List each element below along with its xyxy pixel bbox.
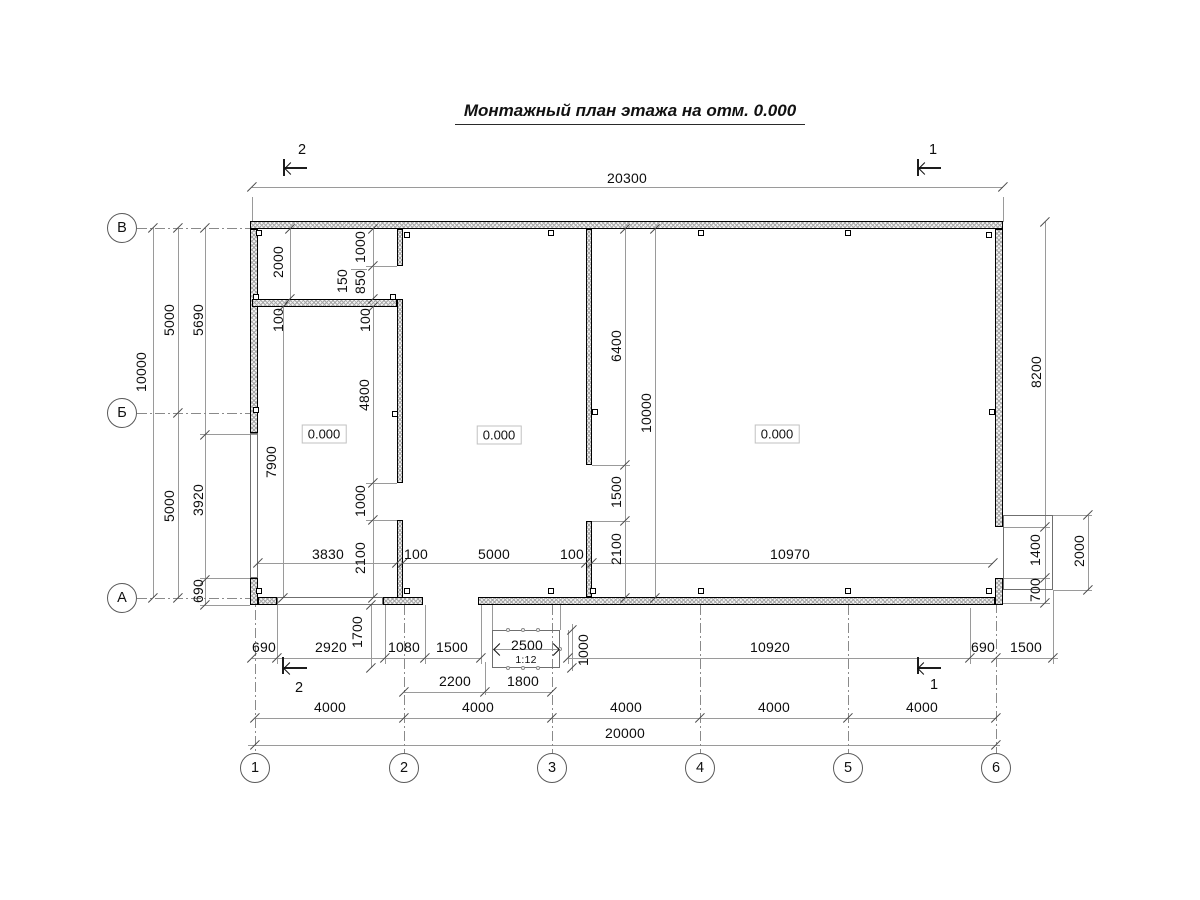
- dimension-label: 2100: [352, 542, 368, 574]
- dimension-label: 1080: [388, 639, 420, 655]
- embedded-plate-mark: [253, 294, 259, 300]
- dimension-line: [1088, 515, 1089, 590]
- dimension-line: [252, 197, 253, 222]
- dimension-label: 1000: [352, 485, 368, 517]
- dimension-label: 4000: [906, 699, 938, 715]
- room-level-label: 0.000: [477, 426, 522, 445]
- axis-bubble: А: [107, 583, 137, 613]
- window-opening: [250, 433, 258, 578]
- dimension-label: 5000: [161, 304, 177, 336]
- dimension-label: 690: [252, 639, 276, 655]
- dimension-label: 10920: [750, 639, 790, 655]
- dimension-label: 6400: [608, 330, 624, 362]
- dimension-label: 850: [352, 270, 368, 294]
- dimension-line: [572, 624, 573, 671]
- dimension-label: 150: [334, 269, 350, 293]
- dimension-label: 2920: [315, 639, 347, 655]
- ramp-anchor-dot: [521, 628, 525, 632]
- dimension-label: 3920: [190, 484, 206, 516]
- dimension-line: [205, 228, 206, 605]
- room-level-label: 0.000: [302, 425, 347, 444]
- axis-line: [137, 413, 258, 414]
- dimension-label: 1800: [507, 673, 539, 689]
- dimension-label: 2500: [511, 637, 543, 653]
- dimension-line: [290, 229, 291, 299]
- dimension-label: 10000: [638, 393, 654, 433]
- dimension-line: [492, 605, 493, 630]
- dimension-label: 5690: [190, 304, 206, 336]
- dimension-label: 700: [1027, 578, 1043, 602]
- embedded-plate-mark: [256, 230, 262, 236]
- dimension-line: [252, 187, 1003, 188]
- dimension-line: [1003, 197, 1004, 222]
- embedded-plate-mark: [548, 588, 554, 594]
- axis-bubble: 3: [537, 753, 567, 783]
- dimension-label: 4000: [758, 699, 790, 715]
- drawing-title-text: Монтажный план этажа на отм. 0.000: [464, 101, 796, 120]
- embedded-plate-mark: [392, 411, 398, 417]
- dimension-line: [568, 658, 1058, 659]
- section-marker-label: 2: [298, 142, 306, 158]
- embedded-plate-mark: [989, 409, 995, 415]
- dimension-label: 1500: [436, 639, 468, 655]
- dimension-label: 8200: [1028, 356, 1044, 388]
- ramp-anchor-dot: [521, 666, 525, 670]
- section-marker-label: 2: [295, 680, 303, 696]
- dimension-label: 2000: [270, 246, 286, 278]
- embedded-plate-mark: [986, 232, 992, 238]
- embedded-plate-mark: [256, 588, 262, 594]
- axis-bubble: 5: [833, 753, 863, 783]
- wall-segment: [258, 597, 277, 605]
- axis-bubble: В: [107, 213, 137, 243]
- section-arrow-icon: [284, 162, 297, 175]
- dimension-label: 1000: [352, 231, 368, 263]
- dimension-label: 1500: [608, 476, 624, 508]
- dimension-line: [200, 605, 250, 606]
- embedded-plate-mark: [592, 409, 598, 415]
- dimension-label: 2000: [1071, 535, 1087, 567]
- dimension-label: 100: [270, 308, 286, 332]
- section-arrow-icon: [918, 162, 931, 175]
- dimension-line: [655, 229, 656, 598]
- dimension-label: 10000: [133, 352, 149, 392]
- dimension-label: 2200: [439, 673, 471, 689]
- dimension-label: 5000: [478, 546, 510, 562]
- dimension-label: 7900: [263, 446, 279, 478]
- floor-plan-canvas: Монтажный план этажа на отм. 0.000 20300…: [0, 0, 1200, 900]
- embedded-plate-mark: [404, 588, 410, 594]
- wall-segment: [478, 597, 995, 605]
- dimension-label: 100: [404, 546, 428, 562]
- dimension-label: 1400: [1027, 534, 1043, 566]
- dimension-label: 690: [971, 639, 995, 655]
- axis-line: [552, 605, 553, 753]
- wall-segment: [586, 229, 592, 465]
- axis-line: [255, 592, 256, 753]
- wall-segment: [397, 229, 403, 266]
- dimension-label: 100: [560, 546, 584, 562]
- axis-bubble: 1: [240, 753, 270, 783]
- dimension-line: [373, 229, 374, 598]
- embedded-plate-mark: [845, 230, 851, 236]
- drawing-title: Монтажный план этажа на отм. 0.000: [455, 101, 805, 125]
- dimension-label: 4000: [462, 699, 494, 715]
- axis-line: [404, 605, 405, 753]
- wall-segment: [383, 597, 423, 605]
- dimension-line: [568, 630, 569, 664]
- dimension-label: 4800: [356, 379, 372, 411]
- dimension-label: 1:12: [515, 654, 536, 666]
- dimension-label: 1500: [1010, 639, 1042, 655]
- dimension-line: [404, 692, 552, 693]
- room-level-label: 0.000: [755, 425, 800, 444]
- embedded-plate-mark: [986, 588, 992, 594]
- wall-segment: [995, 229, 1003, 527]
- wall-segment: [995, 578, 1003, 605]
- dimension-line: [560, 605, 561, 630]
- ramp-anchor-dot: [506, 628, 510, 632]
- axis-line: [137, 228, 250, 229]
- dimension-line: [248, 745, 1000, 746]
- axis-line: [996, 603, 997, 753]
- embedded-plate-mark: [390, 294, 396, 300]
- axis-line: [848, 605, 849, 753]
- dimension-label: 100: [357, 308, 373, 332]
- dimension-label: 4000: [610, 699, 642, 715]
- axis-line: [700, 605, 701, 753]
- dimension-label: 20000: [605, 725, 645, 741]
- embedded-plate-mark: [548, 230, 554, 236]
- dimension-line: [252, 658, 481, 659]
- dimension-line: [283, 307, 284, 598]
- wall-segment: [250, 229, 258, 433]
- section-marker-line: [282, 657, 284, 674]
- section-arrow-icon: [917, 662, 930, 675]
- embedded-plate-mark: [404, 232, 410, 238]
- ramp-anchor-dot: [536, 628, 540, 632]
- axis-bubble: 6: [981, 753, 1011, 783]
- axis-bubble: 4: [685, 753, 715, 783]
- dimension-label: 1000: [575, 634, 591, 666]
- dimension-label: 10970: [770, 546, 810, 562]
- dimension-line: [625, 229, 626, 598]
- ramp-anchor-dot: [536, 666, 540, 670]
- section-arrow-icon: [283, 662, 296, 675]
- dimension-label: 1700: [349, 616, 365, 648]
- dimension-label: 3830: [312, 546, 344, 562]
- embedded-plate-mark: [590, 588, 596, 594]
- embedded-plate-mark: [698, 230, 704, 236]
- dimension-label: 20300: [607, 170, 647, 186]
- axis-bubble: 2: [389, 753, 419, 783]
- dimension-line: [258, 563, 993, 564]
- ramp-anchor-dot: [506, 666, 510, 670]
- wall-segment: [397, 299, 403, 483]
- dimension-label: 690: [190, 579, 206, 603]
- dimension-line: [371, 605, 372, 668]
- embedded-plate-mark: [845, 588, 851, 594]
- axis-bubble: Б: [107, 398, 137, 428]
- dimension-label: 2100: [608, 533, 624, 565]
- dimension-line: [255, 718, 996, 719]
- section-marker-label: 1: [929, 142, 937, 158]
- embedded-plate-mark: [253, 407, 259, 413]
- section-marker-label: 1: [930, 677, 938, 693]
- dimension-label: 5000: [161, 490, 177, 522]
- dimension-label: 4000: [314, 699, 346, 715]
- embedded-plate-mark: [698, 588, 704, 594]
- dimension-line: [1053, 590, 1054, 664]
